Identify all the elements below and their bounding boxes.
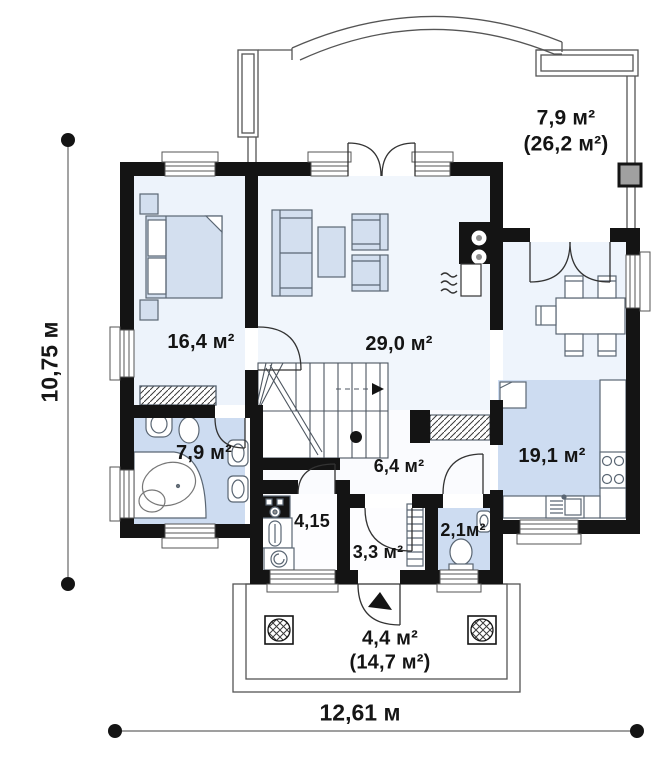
window <box>440 570 478 584</box>
kitchen-sink <box>546 495 584 518</box>
hall-label: 6,4 м² <box>374 456 425 478</box>
bedroom-label: 16,4 м² <box>167 330 234 354</box>
staircase-newel-post <box>350 431 362 443</box>
kitchen-label: 19,1 м² <box>518 444 585 468</box>
terrace-double-door <box>348 143 415 176</box>
dining-chair <box>598 334 616 356</box>
window <box>165 162 215 176</box>
window <box>270 570 335 584</box>
fridge <box>500 382 526 408</box>
firebox <box>461 264 481 296</box>
terrace-label: 7,9 м² (26,2 м²) <box>523 105 608 156</box>
window <box>520 520 578 534</box>
porch-label: 4,4 м² (14,7 м²) <box>349 627 430 676</box>
terrace-post <box>619 164 641 186</box>
bed <box>146 216 222 298</box>
pillow <box>148 258 166 294</box>
porch-post-right <box>468 616 496 644</box>
window <box>120 470 134 518</box>
dining-table <box>556 298 625 334</box>
terrace-total-area: (26,2 м²) <box>523 131 608 157</box>
armchair <box>352 255 388 291</box>
staircase <box>258 363 388 458</box>
dining-chair <box>565 334 583 356</box>
stove <box>600 452 626 488</box>
terrace-area: 7,9 м² <box>523 105 608 131</box>
vestibule-label: 3,3 м² <box>353 542 404 564</box>
floor-plan: 7,9 м² (26,2 м²) 16,4 м² 29,0 м² 7,9 м² … <box>0 0 655 765</box>
dining-chair <box>536 306 556 325</box>
porch-area: 4,4 м² <box>349 627 430 651</box>
utility-fixtures <box>262 496 294 570</box>
terrace-planter-box <box>238 50 258 137</box>
bathroom-label: 7,9 м² <box>176 441 232 465</box>
porch-post-left <box>265 616 293 644</box>
dining-chair <box>598 276 616 298</box>
nightstand <box>140 194 158 214</box>
washing-machine <box>264 548 294 570</box>
hall-wardrobe <box>430 415 490 440</box>
height-dimension: 10,75 м <box>37 322 64 403</box>
wall-radiator <box>228 476 248 502</box>
pillow <box>148 220 166 256</box>
dining-chair <box>565 276 583 298</box>
porch-total-area: (14,7 м²) <box>349 651 430 675</box>
kitchen-counter-right <box>600 380 626 518</box>
coffee-table <box>318 227 345 277</box>
entry-arrow-icon <box>368 592 392 610</box>
terrace-pergola <box>536 50 638 76</box>
window <box>120 330 134 377</box>
window <box>165 524 215 538</box>
window <box>415 162 450 176</box>
window <box>311 162 348 176</box>
window <box>626 255 640 308</box>
wc-toilet <box>449 539 473 570</box>
armchair <box>352 214 388 250</box>
nightstand <box>140 300 158 320</box>
utility-label: 4,15 <box>294 511 330 533</box>
vestibule-radiator <box>407 504 423 566</box>
wc-label: 2,1м² <box>440 520 485 542</box>
sofa <box>272 210 312 296</box>
living-room-label: 29,0 м² <box>365 332 432 356</box>
width-dimension: 12,61 м <box>320 700 401 727</box>
